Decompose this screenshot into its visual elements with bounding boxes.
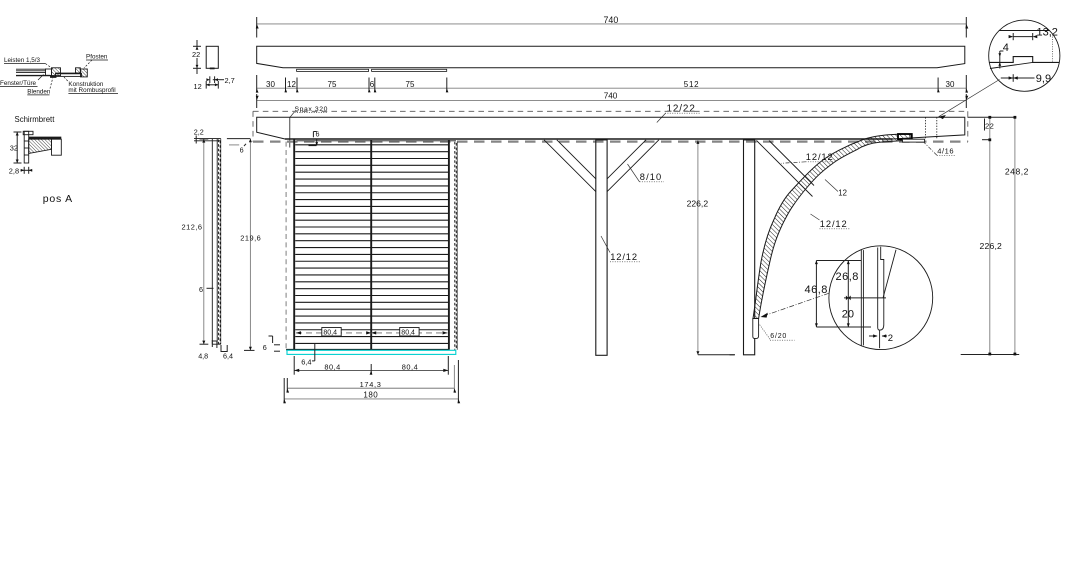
svg-text:226,2: 226,2 <box>687 199 709 209</box>
svg-text:80,4: 80,4 <box>323 330 337 337</box>
svg-text:6: 6 <box>240 145 244 154</box>
svg-text:6,4: 6,4 <box>223 352 233 361</box>
svg-text:mit Rombusprofil: mit Rombusprofil <box>68 87 115 94</box>
svg-text:12/12: 12/12 <box>820 219 848 229</box>
svg-text:12: 12 <box>287 80 296 89</box>
svg-text:740: 740 <box>604 15 619 25</box>
svg-text:20: 20 <box>842 308 854 320</box>
svg-text:8/10: 8/10 <box>640 172 663 182</box>
svg-text:212,6: 212,6 <box>182 222 203 231</box>
svg-text:740: 740 <box>604 92 618 101</box>
svg-text:13,2: 13,2 <box>1037 27 1058 39</box>
svg-text:12/12: 12/12 <box>610 252 638 262</box>
svg-text:Pfosten: Pfosten <box>86 54 108 61</box>
svg-text:75: 75 <box>406 80 415 89</box>
svg-text:30: 30 <box>946 80 955 89</box>
svg-text:4/16: 4/16 <box>937 147 954 156</box>
svg-text:6/20: 6/20 <box>770 333 787 340</box>
svg-text:2,2: 2,2 <box>194 128 204 137</box>
svg-text:80,4: 80,4 <box>402 362 418 371</box>
svg-text:Leisten 1,5/3: Leisten 1,5/3 <box>4 57 41 64</box>
svg-text:226,2: 226,2 <box>980 241 1003 251</box>
svg-text:248,2: 248,2 <box>1005 167 1029 177</box>
svg-text:2,7: 2,7 <box>225 76 235 85</box>
svg-text:Schirmbrett: Schirmbrett <box>15 115 56 124</box>
svg-text:4,8: 4,8 <box>198 352 208 361</box>
svg-text:9,9: 9,9 <box>1036 73 1051 85</box>
svg-text:75: 75 <box>328 80 337 89</box>
svg-text:Blenden: Blenden <box>27 89 51 96</box>
svg-text:6: 6 <box>370 80 375 89</box>
svg-text:22: 22 <box>985 122 994 131</box>
svg-text:80,4: 80,4 <box>401 330 415 337</box>
svg-text:22: 22 <box>192 50 200 59</box>
svg-text:6,4: 6,4 <box>301 357 311 366</box>
svg-text:512: 512 <box>684 80 699 89</box>
svg-text:80,4: 80,4 <box>324 362 340 371</box>
svg-text:pos A: pos A <box>43 193 73 205</box>
svg-text:6: 6 <box>316 130 320 139</box>
svg-text:12/22: 12/22 <box>667 104 696 115</box>
svg-text:6: 6 <box>199 285 203 294</box>
svg-text:46,8: 46,8 <box>805 284 828 296</box>
svg-text:174,3: 174,3 <box>360 380 382 389</box>
svg-text:12/12: 12/12 <box>806 152 834 162</box>
svg-text:4: 4 <box>1003 42 1009 54</box>
svg-text:Fenster/Türe: Fenster/Türe <box>0 80 37 87</box>
svg-text:180: 180 <box>363 391 378 400</box>
svg-text:Spax 320: Spax 320 <box>295 106 329 113</box>
svg-text:30: 30 <box>266 80 275 89</box>
svg-text:12: 12 <box>194 82 202 91</box>
svg-text:6: 6 <box>263 343 267 352</box>
svg-text:32: 32 <box>10 144 18 153</box>
svg-text:2: 2 <box>888 333 893 344</box>
svg-text:219,6: 219,6 <box>240 233 261 242</box>
svg-text:12: 12 <box>838 189 847 198</box>
svg-text:2,8: 2,8 <box>9 167 19 176</box>
svg-text:26,8: 26,8 <box>836 271 859 283</box>
